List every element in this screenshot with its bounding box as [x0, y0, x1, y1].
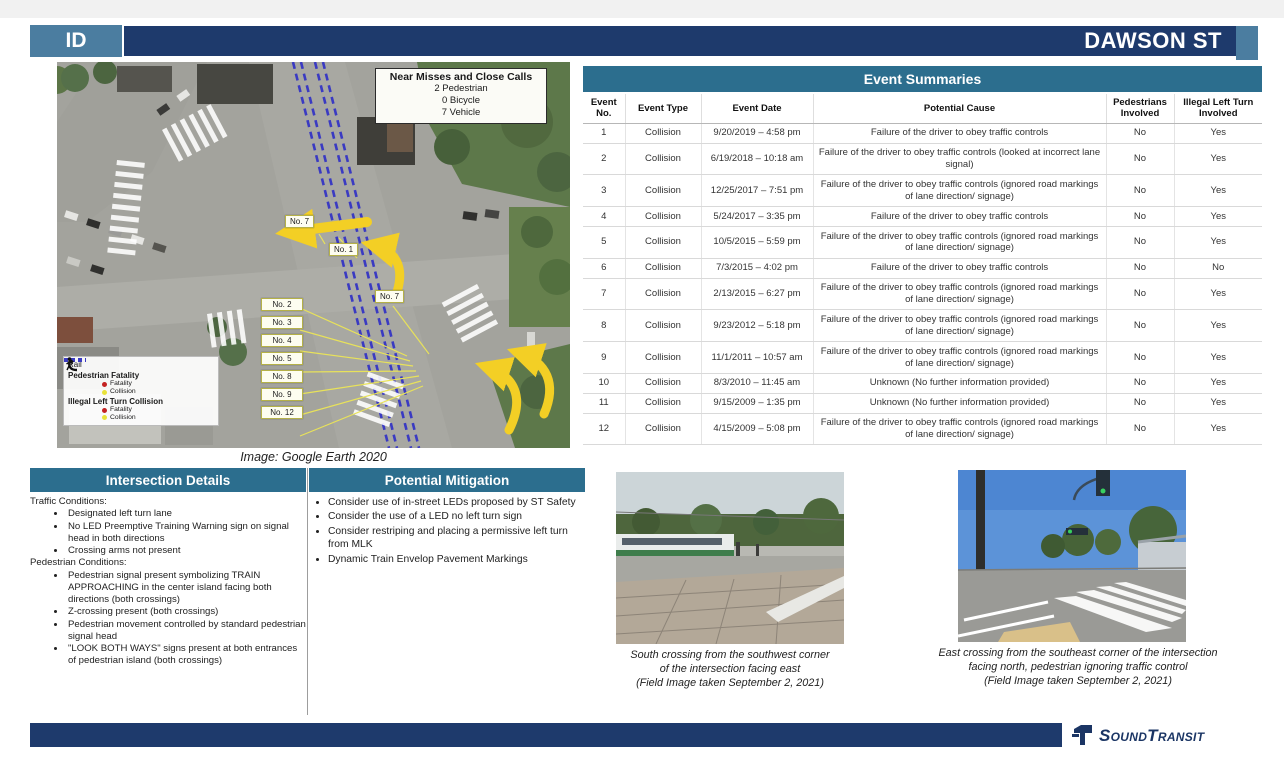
cell-event-no: 1 — [583, 123, 625, 143]
list-item: Dynamic Train Envelop Pavement Markings — [328, 553, 581, 566]
cell-event-date: 2/13/2015 – 6:27 pm — [701, 278, 813, 310]
legend-pedestrian-label: Pedestrian Fatality — [68, 371, 139, 380]
cell-event-type: Collision — [625, 227, 701, 259]
map-label-event: No. 4 — [261, 334, 303, 347]
intersection-details-body: Traffic Conditions: Designated left turn… — [30, 496, 306, 668]
list-item: Consider restriping and placing a permis… — [328, 525, 581, 552]
table-row: 8 Collision 9/23/2012 – 5:18 pm Failure … — [583, 310, 1262, 342]
cell-event-date: 5/24/2017 – 3:35 pm — [701, 207, 813, 227]
title-bar: DAWSON ST — [124, 26, 1236, 56]
cell-event-date: 11/1/2011 – 10:57 am — [701, 342, 813, 374]
cell-illegal-left-turn: Yes — [1174, 393, 1262, 413]
potential-mitigation-title: Potential Mitigation — [385, 473, 510, 488]
near-miss-callout: Near Misses and Close Calls 2 Pedestrian… — [375, 68, 547, 124]
cell-event-date: 7/3/2015 – 4:02 pm — [701, 258, 813, 278]
sound-transit-icon — [1072, 725, 1094, 747]
cell-event-date: 10/5/2015 – 5:59 pm — [701, 227, 813, 259]
list-item: Crossing arms not present — [66, 545, 306, 557]
left-turn-arrow-icon — [64, 357, 79, 372]
cell-event-date: 9/15/2009 – 1:35 pm — [701, 393, 813, 413]
legend-left-turn-fatality: Fatality — [110, 406, 132, 414]
field-photo-east-crossing — [958, 470, 1186, 642]
cell-event-no: 12 — [583, 413, 625, 445]
cell-illegal-left-turn: Yes — [1174, 207, 1262, 227]
map-label-event: No. 7 — [375, 290, 404, 303]
cell-potential-cause: Failure of the driver to obey traffic co… — [813, 342, 1106, 374]
list-item: Pedestrian signal present symbolizing TR… — [66, 570, 306, 607]
cell-illegal-left-turn: Yes — [1174, 143, 1262, 175]
traffic-conditions-list: Designated left turn laneNo LED Preempti… — [30, 508, 306, 557]
map-label-event: No. 5 — [261, 352, 303, 365]
cell-potential-cause: Failure of the driver to obey traffic co… — [813, 207, 1106, 227]
cell-pedestrians-involved: No — [1106, 393, 1174, 413]
cell-event-no: 2 — [583, 143, 625, 175]
brand-wordmark: SoundTransit — [1099, 726, 1204, 746]
map-label-column: No. 2No. 3No. 4No. 5No. 8No. 9No. 12 — [261, 298, 303, 419]
intersection-details-banner: Intersection Details — [30, 468, 306, 492]
brand-logo: SoundTransit — [1072, 725, 1204, 747]
list-item: Designated left turn lane — [66, 508, 306, 520]
near-miss-stats: 2 Pedestrian0 Bicycle7 Vehicle — [376, 83, 546, 119]
cell-pedestrians-involved: No — [1106, 123, 1174, 143]
top-margin — [0, 0, 1284, 18]
table-row: 9 Collision 11/1/2011 – 10:57 am Failure… — [583, 342, 1262, 374]
cell-potential-cause: Failure of the driver to obey traffic co… — [813, 143, 1106, 175]
id-badge-label: ID — [66, 29, 87, 53]
map-label-event: No. 9 — [261, 388, 303, 401]
table-row: 5 Collision 10/5/2015 – 5:59 pm Failure … — [583, 227, 1262, 259]
table-row: 2 Collision 6/19/2018 – 10:18 am Failure… — [583, 143, 1262, 175]
table-row: 6 Collision 7/3/2015 – 4:02 pm Failure o… — [583, 258, 1262, 278]
cell-event-type: Collision — [625, 258, 701, 278]
cell-event-no: 11 — [583, 393, 625, 413]
map-label-event: No. 2 — [261, 298, 303, 311]
cell-potential-cause: Failure of the driver to obey traffic co… — [813, 310, 1106, 342]
cell-potential-cause: Failure of the driver to obey traffic co… — [813, 258, 1106, 278]
map-label-event: No. 1 — [329, 243, 358, 256]
table-row: 11 Collision 9/15/2009 – 1:35 pm Unknown… — [583, 393, 1262, 413]
cell-pedestrians-involved: No — [1106, 258, 1174, 278]
cell-potential-cause: Unknown (No further information provided… — [813, 393, 1106, 413]
cell-event-type: Collision — [625, 342, 701, 374]
cell-illegal-left-turn: Yes — [1174, 413, 1262, 445]
event-summaries-title: Event Summaries — [864, 71, 982, 87]
footer-bar — [30, 723, 1062, 747]
cell-potential-cause: Failure of the driver to obey traffic co… — [813, 175, 1106, 207]
cell-event-no: 8 — [583, 310, 625, 342]
pedestrian-conditions-list: Pedestrian signal present symbolizing TR… — [30, 570, 306, 668]
cell-event-date: 8/3/2010 – 11:45 am — [701, 373, 813, 393]
cell-event-no: 7 — [583, 278, 625, 310]
list-item: Z-crossing present (both crossings) — [66, 606, 306, 618]
near-miss-stat: 2 Pedestrian — [376, 83, 546, 95]
cell-event-date: 9/23/2012 – 5:18 pm — [701, 310, 813, 342]
cell-illegal-left-turn: Yes — [1174, 278, 1262, 310]
cell-pedestrians-involved: No — [1106, 143, 1174, 175]
cell-event-date: 9/20/2019 – 4:58 pm — [701, 123, 813, 143]
intersection-details-title: Intersection Details — [106, 473, 231, 488]
list-item: Consider the use of a LED no left turn s… — [328, 510, 581, 523]
collision-dot-icon — [102, 415, 107, 420]
col-pedestrians-involved: Pedestrians Involved — [1106, 94, 1174, 123]
table-row: 4 Collision 5/24/2017 – 3:35 pm Failure … — [583, 207, 1262, 227]
list-item: "LOOK BOTH WAYS" signs present at both e… — [66, 643, 306, 668]
collision-dot-icon — [102, 390, 107, 395]
cell-illegal-left-turn: Yes — [1174, 342, 1262, 374]
table-row: 3 Collision 12/25/2017 – 7:51 pm Failure… — [583, 175, 1262, 207]
field-photo-east-crossing-image — [958, 470, 1186, 642]
cell-illegal-left-turn: Yes — [1174, 123, 1262, 143]
cell-illegal-left-turn: No — [1174, 258, 1262, 278]
cell-event-date: 12/25/2017 – 7:51 pm — [701, 175, 813, 207]
map-label-event: No. 3 — [261, 316, 303, 329]
legend-left-turn-label: Illegal Left Turn Collision — [68, 397, 163, 406]
cell-event-date: 4/15/2009 – 5:08 pm — [701, 413, 813, 445]
cell-event-type: Collision — [625, 123, 701, 143]
cell-event-type: Collision — [625, 143, 701, 175]
mitigation-list: Consider use of in-street LEDs proposed … — [313, 496, 581, 566]
cell-illegal-left-turn: Yes — [1174, 373, 1262, 393]
legend-pedestrian-fatality: Fatality — [110, 380, 132, 388]
field-photo-south-crossing-image — [616, 472, 844, 644]
cell-pedestrians-involved: No — [1106, 310, 1174, 342]
cell-event-no: 10 — [583, 373, 625, 393]
cell-potential-cause: Failure of the driver to obey traffic co… — [813, 278, 1106, 310]
page-title: DAWSON ST — [1084, 28, 1222, 54]
col-event-no: Event No. — [583, 94, 625, 123]
id-badge: ID — [30, 25, 122, 57]
cell-pedestrians-involved: No — [1106, 207, 1174, 227]
cell-event-no: 9 — [583, 342, 625, 374]
cell-pedestrians-involved: No — [1106, 227, 1174, 259]
cell-event-no: 3 — [583, 175, 625, 207]
list-item: No LED Preemptive Training Warning sign … — [66, 521, 306, 546]
cell-event-no: 6 — [583, 258, 625, 278]
cell-event-type: Collision — [625, 175, 701, 207]
list-item: Pedestrian movement controlled by standa… — [66, 619, 306, 644]
cell-potential-cause: Failure of the driver to obey traffic co… — [813, 123, 1106, 143]
event-summaries-banner: Event Summaries — [583, 66, 1262, 92]
cell-illegal-left-turn: Yes — [1174, 175, 1262, 207]
photo-caption: South crossing from the southwest corner… — [596, 648, 864, 690]
cell-illegal-left-turn: Yes — [1174, 310, 1262, 342]
table-row: 12 Collision 4/15/2009 – 5:08 pm Failure… — [583, 413, 1262, 445]
cell-event-type: Collision — [625, 373, 701, 393]
cell-event-no: 5 — [583, 227, 625, 259]
cell-potential-cause: Failure of the driver to obey traffic co… — [813, 413, 1106, 445]
cell-pedestrians-involved: No — [1106, 373, 1174, 393]
cell-event-type: Collision — [625, 207, 701, 227]
legend-left-turn-collision: Collision — [110, 414, 136, 422]
cell-pedestrians-involved: No — [1106, 342, 1174, 374]
near-miss-stat: 0 Bicycle — [376, 95, 546, 107]
cell-potential-cause: Unknown (No further information provided… — [813, 373, 1106, 393]
photo-caption: East crossing from the southeast corner … — [928, 646, 1228, 688]
cell-pedestrians-involved: No — [1106, 413, 1174, 445]
title-bar-end-cap — [1236, 26, 1258, 60]
cell-event-type: Collision — [625, 393, 701, 413]
map-caption: Image: Google Earth 2020 — [57, 450, 570, 464]
cell-event-no: 4 — [583, 207, 625, 227]
near-miss-stat: 7 Vehicle — [376, 107, 546, 119]
table-row: 10 Collision 8/3/2010 – 11:45 am Unknown… — [583, 373, 1262, 393]
table-row: 7 Collision 2/13/2015 – 6:27 pm Failure … — [583, 278, 1262, 310]
list-item: Consider use of in-street LEDs proposed … — [328, 496, 581, 509]
map-label-event: No. 12 — [261, 406, 303, 419]
cell-event-type: Collision — [625, 310, 701, 342]
col-illegal-left-turn: Illegal Left Turn Involved — [1174, 94, 1262, 123]
cell-pedestrians-involved: No — [1106, 175, 1174, 207]
cell-event-type: Collision — [625, 413, 701, 445]
legend-pedestrian-collision: Collision — [110, 388, 136, 396]
field-photo-south-crossing — [616, 472, 844, 644]
table-row: 1 Collision 9/20/2019 – 4:58 pm Failure … — [583, 123, 1262, 143]
potential-mitigation-banner: Potential Mitigation — [309, 468, 585, 492]
fatality-dot-icon — [102, 382, 107, 387]
cell-event-date: 6/19/2018 – 10:18 am — [701, 143, 813, 175]
traffic-conditions-heading: Traffic Conditions: — [30, 496, 306, 508]
potential-mitigation-body: Consider use of in-street LEDs proposed … — [313, 496, 581, 567]
col-event-date: Event Date — [701, 94, 813, 123]
fatality-dot-icon — [102, 408, 107, 413]
map-label-event: No. 7 — [285, 215, 314, 228]
event-summaries-table: Event No. Event Type Event Date Potentia… — [583, 94, 1262, 445]
slide-canvas: ID DAWSON ST — [0, 0, 1284, 772]
cell-potential-cause: Failure of the driver to obey traffic co… — [813, 227, 1106, 259]
near-miss-title: Near Misses and Close Calls — [376, 71, 546, 83]
aerial-map: Near Misses and Close Calls 2 Pedestrian… — [57, 62, 570, 448]
col-potential-cause: Potential Cause — [813, 94, 1106, 123]
cell-pedestrians-involved: No — [1106, 278, 1174, 310]
table-header-row: Event No. Event Type Event Date Potentia… — [583, 94, 1262, 123]
cell-illegal-left-turn: Yes — [1174, 227, 1262, 259]
event-table-body: 1 Collision 9/20/2019 – 4:58 pm Failure … — [583, 123, 1262, 445]
cell-event-type: Collision — [625, 278, 701, 310]
map-legend: Rail Pedestrian Fatality Fatality Collis… — [63, 356, 219, 426]
col-event-type: Event Type — [625, 94, 701, 123]
pedestrian-conditions-heading: Pedestrian Conditions: — [30, 557, 306, 569]
panel-divider — [307, 468, 308, 715]
map-label-event: No. 8 — [261, 370, 303, 383]
